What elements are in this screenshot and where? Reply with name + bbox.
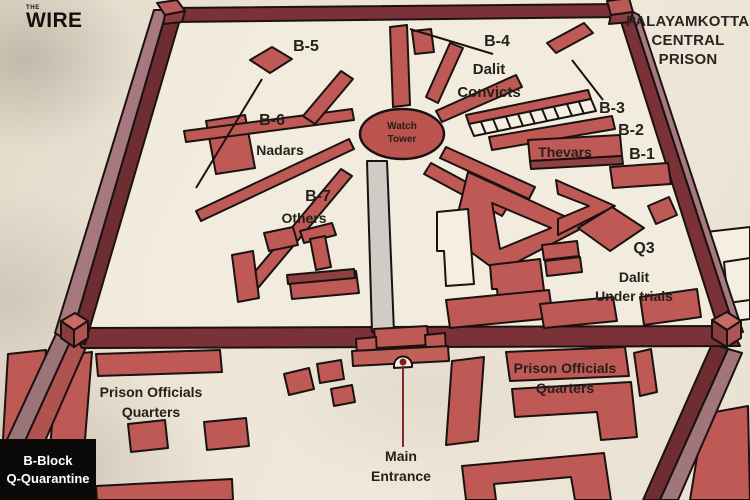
legend-bblock-quarantine: B-Block Q-Quarantine bbox=[0, 439, 96, 500]
logo-wire: WIRE bbox=[26, 11, 82, 31]
label-b3: B-3 bbox=[599, 98, 625, 120]
label-b4: B-4 bbox=[484, 31, 510, 53]
label-prison-officials-left: Prison Officials Quarters bbox=[100, 382, 203, 423]
label-nadars: Nadars bbox=[256, 141, 303, 161]
the-wire-logo: THE WIRE bbox=[26, 5, 82, 31]
entrance-pointer bbox=[400, 359, 407, 448]
label-dalit-under-trials: Dalit Under trials bbox=[595, 268, 673, 306]
label-b7: B-7 bbox=[305, 186, 331, 208]
label-others: Others bbox=[281, 209, 326, 229]
label-watch-tower: Watch Tower bbox=[387, 121, 417, 146]
label-dalit-convicts: Dalit Convicts bbox=[457, 59, 520, 104]
label-main-entrance: Main Entrance bbox=[371, 447, 431, 486]
label-b2: B-2 bbox=[618, 120, 644, 142]
label-b1: B-1 bbox=[629, 144, 655, 166]
page-title: PALAYAMKOTTAI CENTRAL PRISON bbox=[626, 13, 750, 69]
label-b6: B-6 bbox=[259, 110, 285, 132]
label-q3: Q3 bbox=[633, 238, 654, 260]
label-b5: B-5 bbox=[293, 36, 319, 58]
label-prison-officials-right: Prison Officials Quarters bbox=[514, 359, 617, 398]
label-thevars: Thevars bbox=[538, 143, 592, 163]
prison-map-infographic: THE WIRE PALAYAMKOTTAI CENTRAL PRISON B-… bbox=[0, 0, 750, 500]
